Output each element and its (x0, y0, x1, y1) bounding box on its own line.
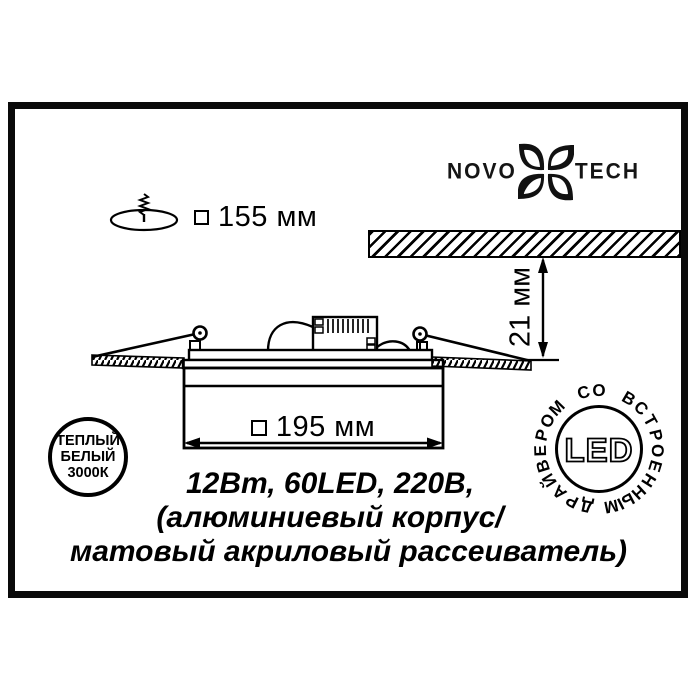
novotech-logo: NOVO TECH (447, 141, 640, 203)
square-symbol-icon (194, 210, 209, 225)
cutout-dimension: 155 мм (194, 201, 317, 234)
warm-white-line-2: БЕЛЫЙ (61, 449, 116, 465)
spec-text: 12Вт, 60LED, 220В, (алюминиевый корпус/ … (70, 467, 590, 569)
warm-white-line-1: ТЕПЛЫЙ (56, 433, 120, 449)
warm-white-badge: ТЕПЛЫЙ БЕЛЫЙ 3000К (48, 417, 128, 497)
led-label: LED (565, 432, 634, 469)
warm-white-line-3: 3000К (67, 465, 108, 481)
logo-text-novo: NOVO (447, 159, 517, 184)
driver-box (313, 317, 377, 352)
panel-dimension: 195 мм (203, 411, 423, 444)
driver-wire-left (268, 322, 313, 351)
spec-line-3: матовый акриловый рассеиватель) (70, 535, 590, 569)
cutout-dimension-label: 155 мм (218, 201, 317, 234)
diagram-canvas: 155 мм NOVO (0, 0, 700, 700)
led-circle: LED (555, 405, 643, 493)
logo-text-tech: TECH (575, 159, 640, 184)
spec-line-2: (алюминиевый корпус/ (70, 501, 590, 535)
spec-line-1: 12Вт, 60LED, 220В, (70, 467, 590, 501)
drill-hole-icon (103, 192, 189, 236)
led-badge: ДРАЙВЕРОМ СО ВСТРОЕННЫМ LED (523, 373, 675, 525)
square-symbol-icon (251, 420, 267, 436)
panel-dimension-label: 195 мм (276, 411, 375, 444)
logo-flower-icon (518, 141, 574, 203)
